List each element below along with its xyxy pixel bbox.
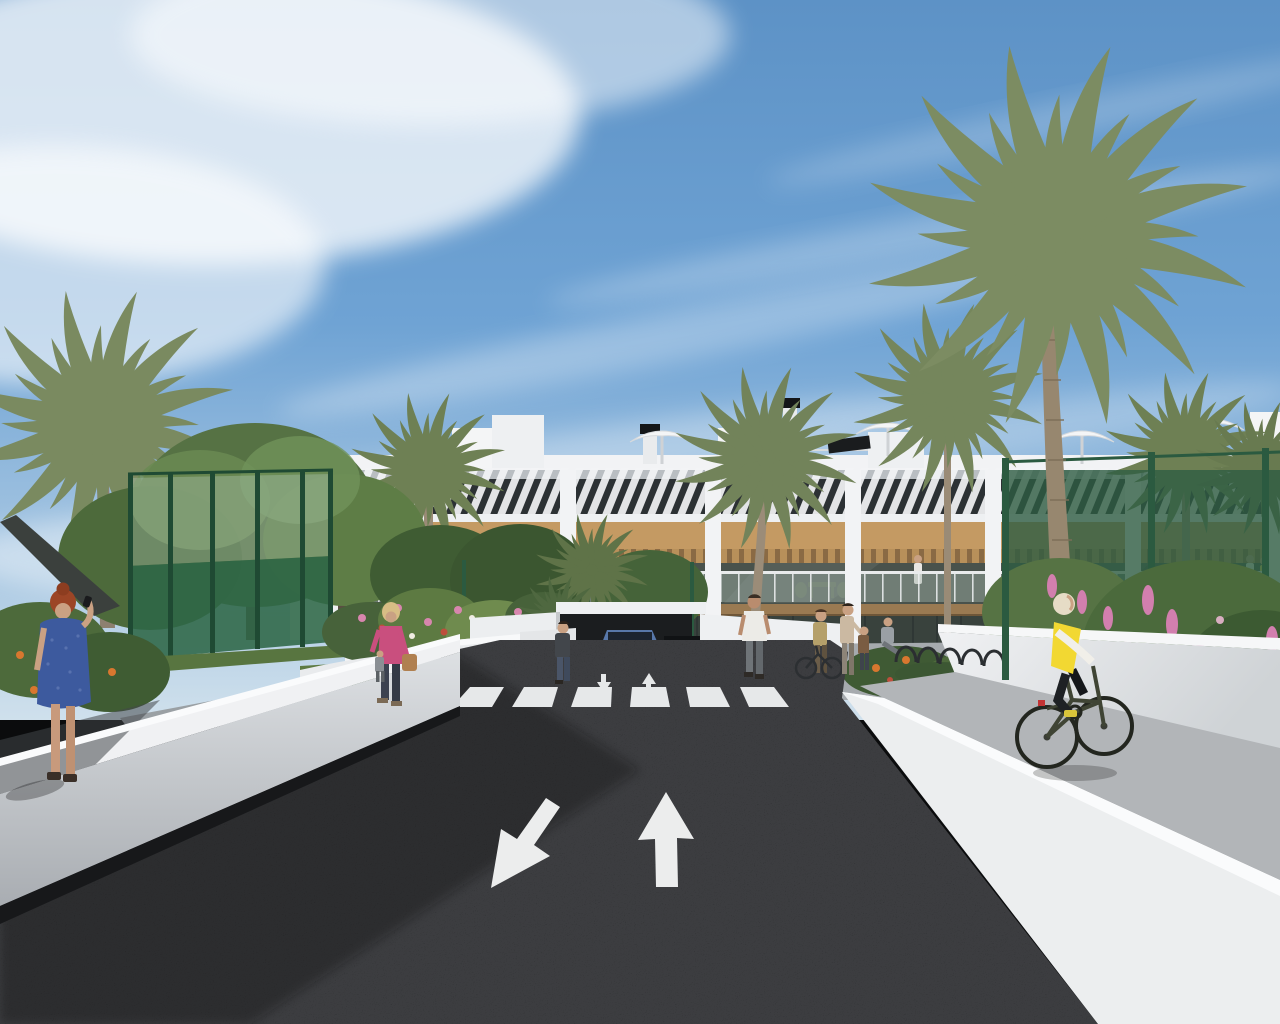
palm-tree xyxy=(675,367,857,549)
render-image xyxy=(0,0,1280,1024)
fence-post-foreground xyxy=(1002,560,1009,680)
palm-tree-large xyxy=(869,46,1248,425)
chimney-icon xyxy=(640,424,660,464)
